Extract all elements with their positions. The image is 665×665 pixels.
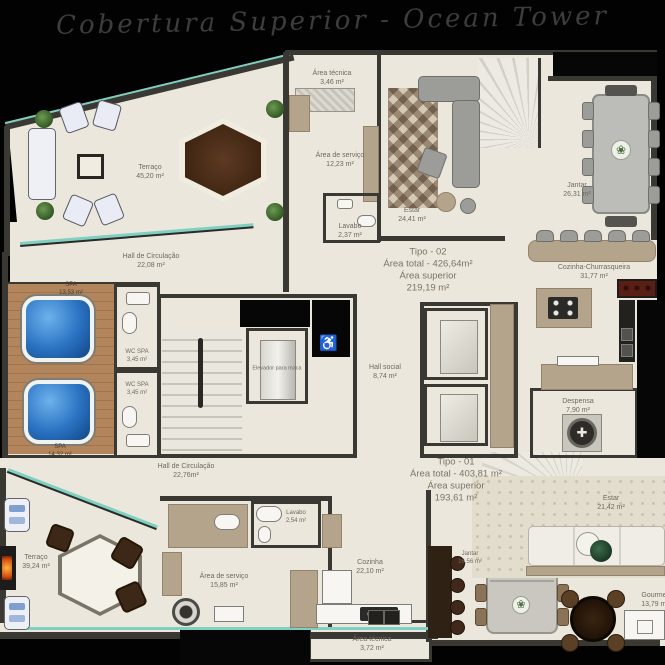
oven-icon: [621, 328, 633, 341]
dining-chair: [648, 102, 660, 120]
bar-stool: [584, 230, 602, 242]
plan-title: Cobertura Superior - Ocean Tower: [0, 0, 665, 42]
room-label-estar-inferior: Estar21,42 m²: [597, 494, 625, 512]
room-label-hall-circulacao-inferior: Hall de Circulação22,76m²: [158, 462, 215, 480]
plant-icon: [266, 100, 284, 118]
lounge-chair: [4, 498, 30, 532]
dining-chair: [605, 85, 637, 96]
dining-chair: [582, 130, 594, 148]
dining-chair: [582, 158, 594, 176]
room-label-terraco-inferior: Terraço39,24 m²: [22, 553, 50, 571]
room-label-hall-circulacao-superior: Hall de Circulação22,08 m²: [123, 252, 180, 270]
unit-info-tipo-02: Tipo - 02 Área total - 426,64m² Área sup…: [383, 246, 472, 294]
gourmet-counter: [624, 610, 665, 640]
sink-icon: [337, 199, 353, 209]
void-top-right: [553, 52, 657, 76]
room-label-area-servico-inferior: Área de serviço15,85 m²: [200, 572, 249, 590]
kitchen-island: [290, 570, 318, 628]
tech-equipment: [368, 610, 384, 625]
bar-dark: [428, 546, 452, 638]
room-label-spa-1: SPA13,53 m²: [59, 282, 83, 298]
elevator-cab: [424, 308, 488, 380]
wall-lowerright-bottom: [430, 640, 660, 646]
hot-tub-icon: [24, 380, 94, 444]
bar-stool-dark: [450, 600, 465, 615]
room-label-despensa: Despensa7,90 m²: [562, 397, 594, 415]
plant-icon: [35, 110, 53, 128]
toilet-icon: [258, 526, 271, 543]
sofa-base: [526, 566, 665, 576]
shaft-a: [240, 300, 310, 327]
kitchen-counter: [541, 364, 633, 390]
fireplace-icon: [77, 154, 104, 179]
wall-x285: [283, 52, 289, 292]
room-label-wc-spa-1: WC SPA3,45 m²: [125, 349, 148, 365]
room-label-terraco-superior: Terraço45,20 m²: [136, 163, 164, 181]
plant-icon: [36, 202, 54, 220]
plant-icon: [266, 203, 284, 221]
flower-centerpiece-icon: ❀: [512, 596, 530, 614]
kitchen-cabinet: [322, 514, 342, 548]
sink-icon: [126, 434, 150, 447]
gourmet-stool: [561, 590, 579, 608]
void-bottom-box: [180, 630, 310, 665]
laundry-sink: [214, 514, 240, 530]
toilet-icon: [122, 312, 137, 334]
hot-tub-icon: [22, 296, 94, 362]
vent-fan-icon: ✚: [567, 418, 597, 448]
terrace-sofa: [28, 128, 56, 200]
dining-chair: [605, 216, 637, 227]
wall-jantar-top: [548, 76, 657, 81]
room-label-wc-spa-2: WC SPA3,45 m²: [125, 382, 148, 398]
sink-icon: [126, 292, 150, 305]
bar-stool-dark: [450, 578, 465, 593]
sofa-gray: [452, 100, 480, 188]
flower-centerpiece-icon: ❀: [611, 140, 631, 160]
appliance: [557, 356, 599, 366]
room-label-elevador-maca: Elevador para maca: [252, 365, 301, 372]
room-label-area-tecnica-superior: Área técnica3,46 m²: [313, 69, 352, 87]
cooktop-icon: [548, 297, 578, 319]
curved-staircase-upper: [478, 58, 541, 148]
elevator-cab: [424, 384, 488, 446]
lounge-chair: [4, 596, 30, 630]
gourmet-stool: [607, 590, 625, 608]
service-cabinet: [363, 126, 379, 202]
room-label-jantar-superior: Jantar26,31 m²: [563, 181, 591, 199]
sofa-gray: [418, 76, 480, 102]
room-label-area-servico-superior: Área de serviço12,23 m²: [316, 151, 365, 169]
washer-icon: [172, 598, 200, 626]
room-label-jantar-inferior: Jantar16,56 m²: [458, 551, 482, 567]
void-right-edge: [637, 300, 665, 458]
gourmet-stool: [607, 634, 625, 652]
wall-y236: [380, 236, 505, 241]
microwave-icon: [621, 344, 633, 357]
fridge-icon: [322, 570, 352, 604]
unit-info-tipo-01: Tipo - 01 Área total - 403,81 m² Área su…: [410, 456, 502, 504]
coffee-table: [436, 192, 456, 212]
room-label-spa-2: SPA14,32 m²: [48, 444, 72, 460]
laundry-door: [214, 606, 244, 622]
sink-icon: [256, 506, 282, 522]
dining-chair: [648, 130, 660, 148]
room-label-lavabo-superior: Lavabo2,37 m²: [338, 222, 362, 240]
bar-counter: [528, 240, 656, 262]
gourmet-stool: [561, 634, 579, 652]
grill-icon: [617, 279, 657, 298]
dining-chair: [648, 158, 660, 176]
pouf: [460, 198, 476, 214]
dining-chair: [582, 102, 594, 120]
dining-chair: [475, 584, 487, 602]
fireplace-icon: [0, 546, 16, 590]
room-label-gourmet: Gourmet13,79 m²: [641, 591, 665, 609]
room-label-lavabo-inferior: Lavabo2,54 m²: [286, 510, 306, 526]
floor-plan: Cobertura Superior - Ocean Tower ♿: [0, 0, 665, 665]
bar-stool: [536, 230, 554, 242]
room-label-cozinha-inferior: Cozinha22,10 m²: [356, 558, 384, 576]
plant-icon: [590, 540, 612, 562]
bar-stool: [632, 230, 650, 242]
central-staircase: [162, 330, 242, 452]
room-label-estar-superior: Estar24,41 m²: [398, 206, 426, 224]
elevator-pillar: [490, 304, 514, 448]
bar-stool: [608, 230, 626, 242]
wheelchair-icon: ♿: [319, 334, 338, 352]
wall-left-upper: [4, 126, 10, 256]
dining-chair: [557, 608, 569, 626]
tech-equipment: [384, 610, 400, 625]
bar-stool-dark: [450, 620, 465, 635]
service-cabinet: [289, 95, 310, 132]
bar-stool: [560, 230, 578, 242]
room-label-hall-social: Hall social8,74 m²: [369, 363, 401, 381]
room-label-cozinha-churrasqueira: Cozinha-Churrasqueira31,77 m²: [558, 263, 630, 281]
laundry-cabinet: [162, 552, 182, 596]
toilet-icon: [122, 406, 137, 428]
dining-chair: [475, 608, 487, 626]
room-label-area-tecnica-inferior: Área técnica3,72 m²: [353, 635, 392, 653]
dining-chair: [648, 186, 660, 204]
